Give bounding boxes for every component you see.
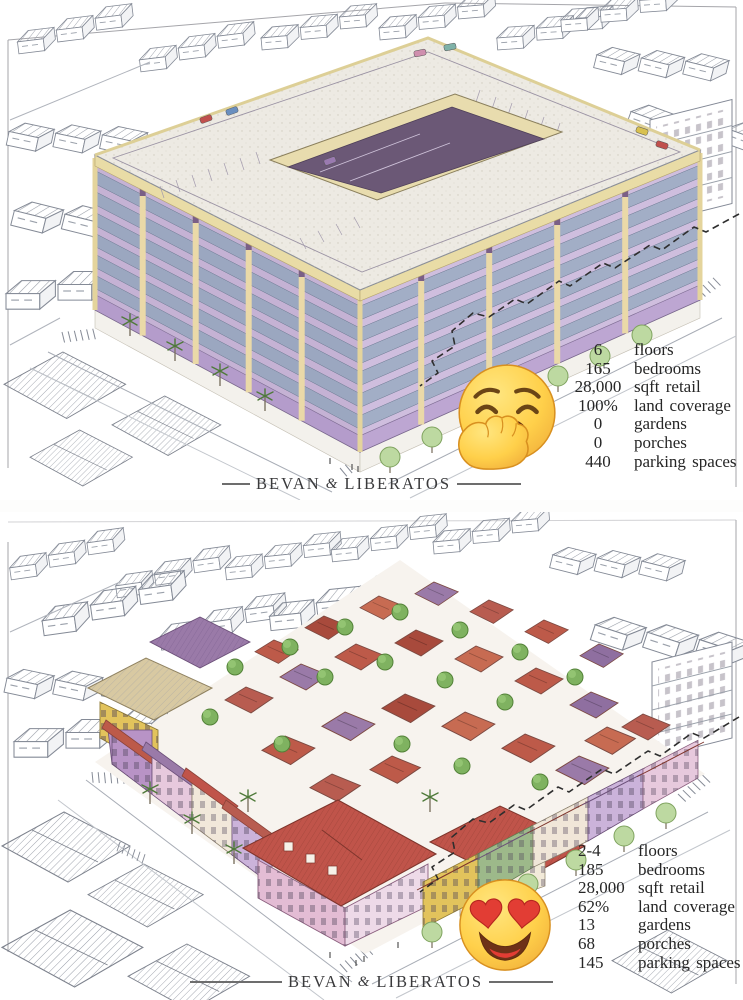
stat-row: 13gardens (576, 916, 741, 935)
rule-line (489, 981, 553, 982)
stat-row: 28,000sqft retail (570, 378, 737, 397)
rule-line (457, 483, 521, 484)
brand-ampersand: & (326, 476, 340, 493)
stat-row: 0gardens (570, 415, 737, 434)
brand-signature: BEVAN & LIBERATOS (0, 972, 743, 992)
heart-eyes-emoji (456, 876, 554, 974)
urbanism-comparison-image: 6floors 165bedrooms 28,000sqft retail 10… (0, 0, 743, 1000)
brand-second: LIBERATOS (376, 972, 483, 992)
stat-row: 62%land coverage (576, 898, 741, 917)
rule-line (190, 981, 282, 982)
stats-list-block: 2-4floors 185bedrooms 28,000sqft retail … (576, 842, 741, 972)
stat-row: 28,000sqft retail (576, 879, 741, 898)
stat-row: 0porches (570, 434, 737, 453)
brand-signature: BEVAN & LIBERATOS (0, 474, 743, 494)
stat-row: 6floors (570, 341, 737, 360)
panel-fine-grained-neighborhood: 2-4floors 185bedrooms 28,000sqft retail … (0, 512, 743, 1000)
stats-list-block: 6floors 165bedrooms 28,000sqft retail 10… (570, 341, 737, 471)
stat-row: 165bedrooms (570, 360, 737, 379)
brand-ampersand: & (358, 974, 372, 991)
yawning-face-emoji (449, 360, 561, 476)
brand-first: BEVAN (288, 972, 353, 992)
stat-row: 68porches (576, 935, 741, 954)
rule-line (222, 483, 250, 484)
stat-row: 145parking spaces (576, 954, 741, 973)
stat-row: 100%land coverage (570, 397, 737, 416)
panel-six-story-block: 6floors 165bedrooms 28,000sqft retail 10… (0, 0, 743, 500)
sketch-rowhouse (652, 642, 732, 758)
stat-row: 2-4floors (576, 842, 741, 861)
brand-first: BEVAN (256, 474, 321, 494)
stat-row: 185bedrooms (576, 861, 741, 880)
stat-row: 440parking spaces (570, 453, 737, 472)
brand-second: LIBERATOS (344, 474, 451, 494)
